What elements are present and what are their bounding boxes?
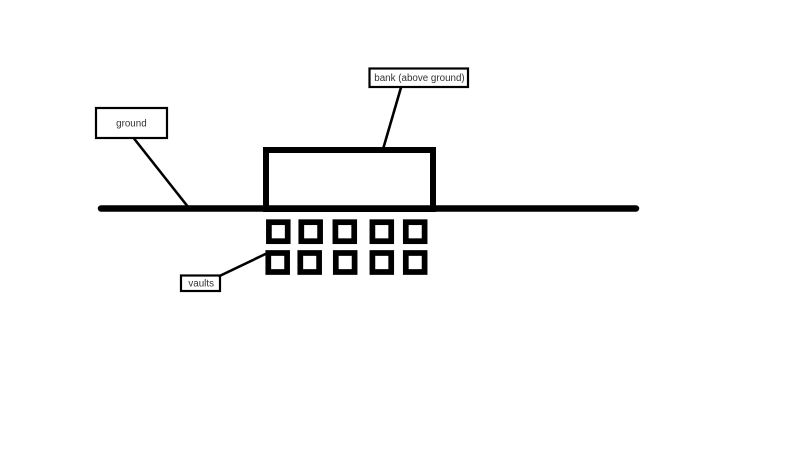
svg-text:vaults: vaults	[188, 279, 214, 290]
svg-text:ground: ground	[116, 118, 147, 129]
svg-text:bank (above ground): bank (above ground)	[374, 73, 464, 84]
